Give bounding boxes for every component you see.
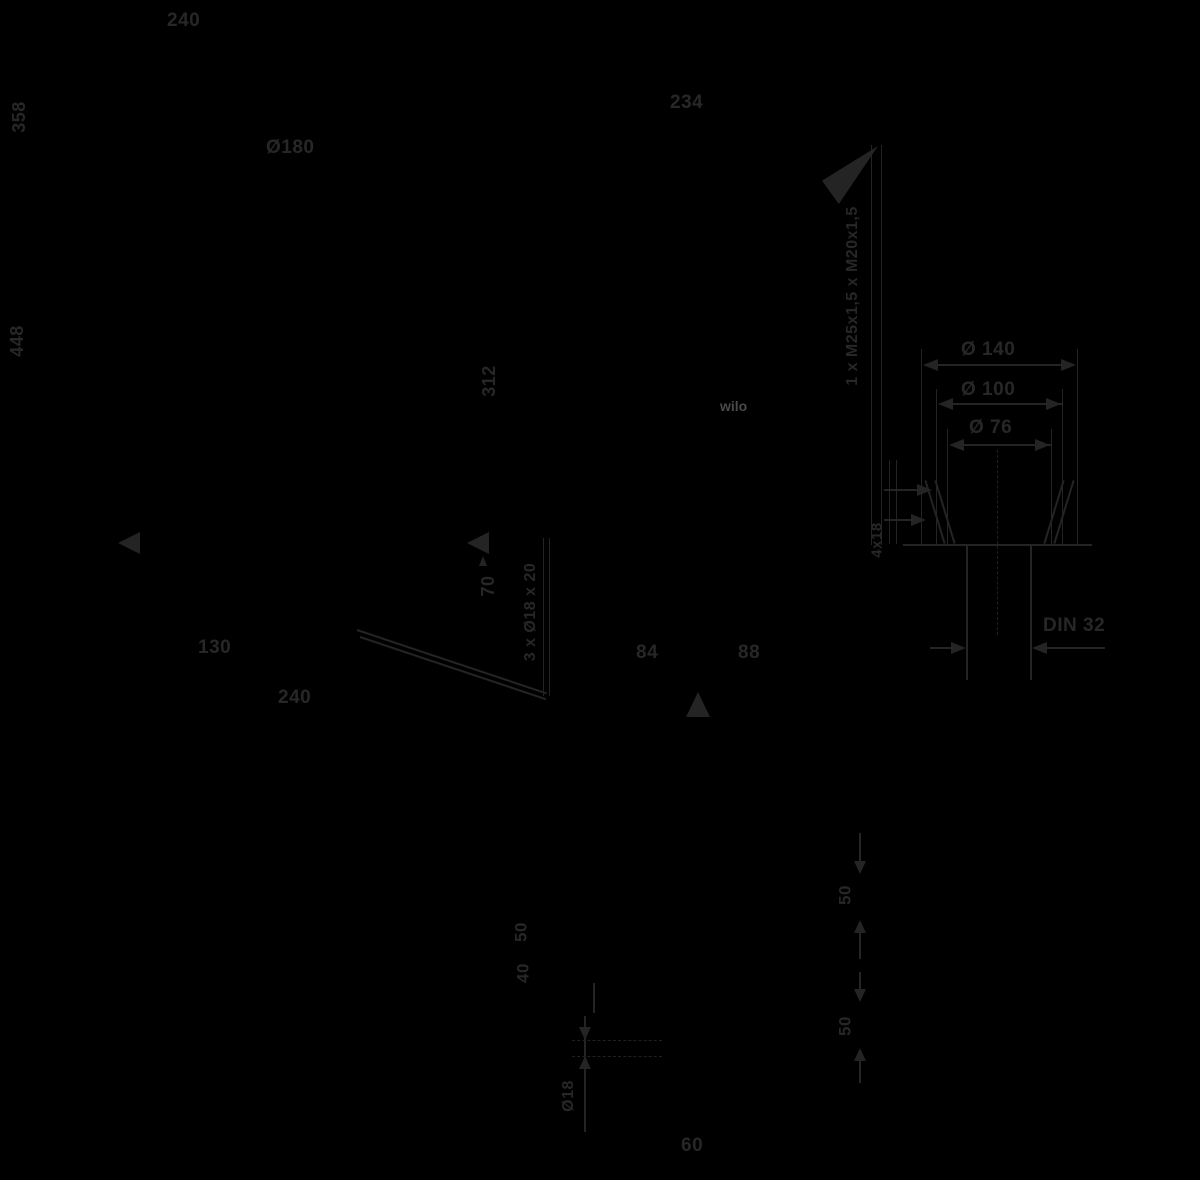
dim-base-offset: 130 [198, 638, 231, 657]
arrowhead-right-icon [911, 514, 926, 526]
wilo-logo: wilo [720, 399, 747, 413]
water-level-marker-icon [467, 532, 489, 554]
dimension-drawing: 240 Ø180 234 Ø 140 Ø 100 Ø 76 DIN 32 130… [0, 0, 1200, 1180]
dim-hole-dia: Ø18 [561, 1080, 577, 1112]
leader-line [930, 647, 952, 649]
dim-height-312: 312 [480, 365, 498, 397]
dim-motor-width: 234 [670, 93, 703, 112]
pipe-wall-line [1030, 546, 1032, 680]
dim-height-70: 70 [479, 575, 497, 596]
bolt-hole-line [934, 480, 955, 544]
dim-flange-hub: Ø 76 [969, 418, 1012, 437]
extension-line [1062, 389, 1063, 545]
flange-edge-line [896, 460, 897, 544]
dimension-line [859, 972, 861, 990]
cable-gland-label: 1 x M25x1,5 x M20x1,5 [845, 206, 861, 386]
reference-line [572, 1056, 662, 1057]
dimension-line [859, 933, 861, 959]
arrowhead-down-icon [579, 1027, 591, 1040]
reference-line [572, 1040, 662, 1041]
arrowhead-down-icon [854, 861, 866, 874]
arrowhead-up-icon [854, 920, 866, 933]
flange-edge-line [889, 460, 890, 544]
leader-line [884, 519, 912, 521]
dim-50-right-lower: 50 [837, 1016, 854, 1036]
dimension-line [943, 403, 1063, 405]
foot-holes-label: 3 x Ø18 x 20 [523, 563, 539, 662]
dim-height-total: 448 [8, 325, 26, 357]
extension-line [1051, 429, 1052, 545]
dimension-line [859, 1061, 861, 1083]
water-level-marker-icon [118, 532, 140, 554]
arrowhead-right-icon [951, 642, 966, 654]
extension-line [593, 983, 595, 1013]
arrowhead-right-icon [917, 484, 932, 496]
dim-84: 84 [636, 643, 658, 662]
arrowhead-left-icon [949, 439, 964, 451]
pipe-wall-line [966, 546, 968, 680]
dim-88: 88 [738, 643, 760, 662]
dim-height-upper: 358 [10, 101, 28, 133]
arrowhead-left-icon [1032, 642, 1047, 654]
flange-standard-label: DIN 32 [1043, 616, 1105, 635]
extension-line [881, 145, 882, 545]
leader-line [884, 489, 918, 491]
dim-width-top: 240 [167, 11, 200, 30]
datum-triangle-icon [686, 692, 710, 717]
arrowhead-left-icon [938, 398, 953, 410]
arrowhead-right-icon [1046, 398, 1061, 410]
extension-line [549, 538, 550, 696]
dim-60: 60 [681, 1136, 703, 1155]
dimension-line [928, 364, 1072, 366]
dim-50-mid: 50 [513, 922, 530, 942]
arrowhead-left-icon [923, 359, 938, 371]
arrowhead-right-icon [1061, 359, 1076, 371]
dim-base-width: 240 [278, 688, 311, 707]
dim-flange-od: Ø 140 [961, 340, 1015, 359]
arrowhead-down-icon [854, 989, 866, 1002]
cable-direction-arrow-icon [822, 146, 878, 204]
bolt-hole-line [1053, 480, 1074, 544]
extension-line [543, 538, 544, 696]
dim-50-right-upper: 50 [837, 885, 854, 905]
leader-line [360, 636, 547, 700]
dim-body-diameter: Ø180 [266, 138, 314, 157]
small-up-arrow-icon [479, 556, 487, 566]
extension-line [1077, 349, 1078, 545]
leader-line [357, 629, 547, 694]
dim-40: 40 [515, 963, 532, 983]
leader-line [1047, 647, 1105, 649]
arrowhead-up-icon [579, 1056, 591, 1069]
center-line [997, 450, 998, 635]
dim-flange-bolt-circle: Ø 100 [961, 380, 1015, 399]
extension-line [871, 145, 872, 545]
arrowhead-right-icon [1035, 439, 1050, 451]
arrowhead-up-icon [854, 1048, 866, 1061]
